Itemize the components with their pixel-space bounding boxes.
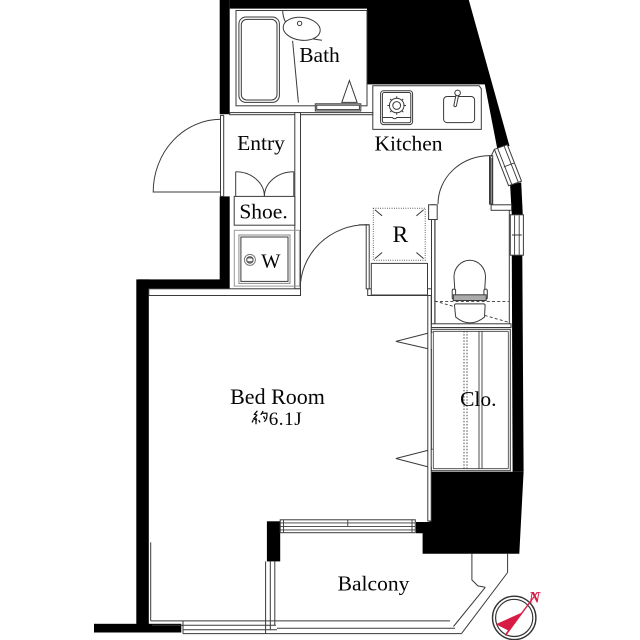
svg-text:Bed Room: Bed Room (230, 384, 325, 409)
svg-text:Shoe.: Shoe. (239, 200, 287, 224)
svg-text:Clo.: Clo. (460, 387, 496, 411)
svg-text:R: R (392, 222, 408, 248)
svg-text:Entry: Entry (237, 131, 285, 155)
svg-text:N: N (528, 590, 542, 607)
svg-text:W: W (261, 251, 281, 273)
svg-text:Kitchen: Kitchen (374, 132, 442, 156)
svg-text:Balcony: Balcony (338, 571, 410, 595)
svg-text:Bath: Bath (299, 43, 340, 67)
svg-text:6.1J: 6.1J (269, 409, 303, 430)
